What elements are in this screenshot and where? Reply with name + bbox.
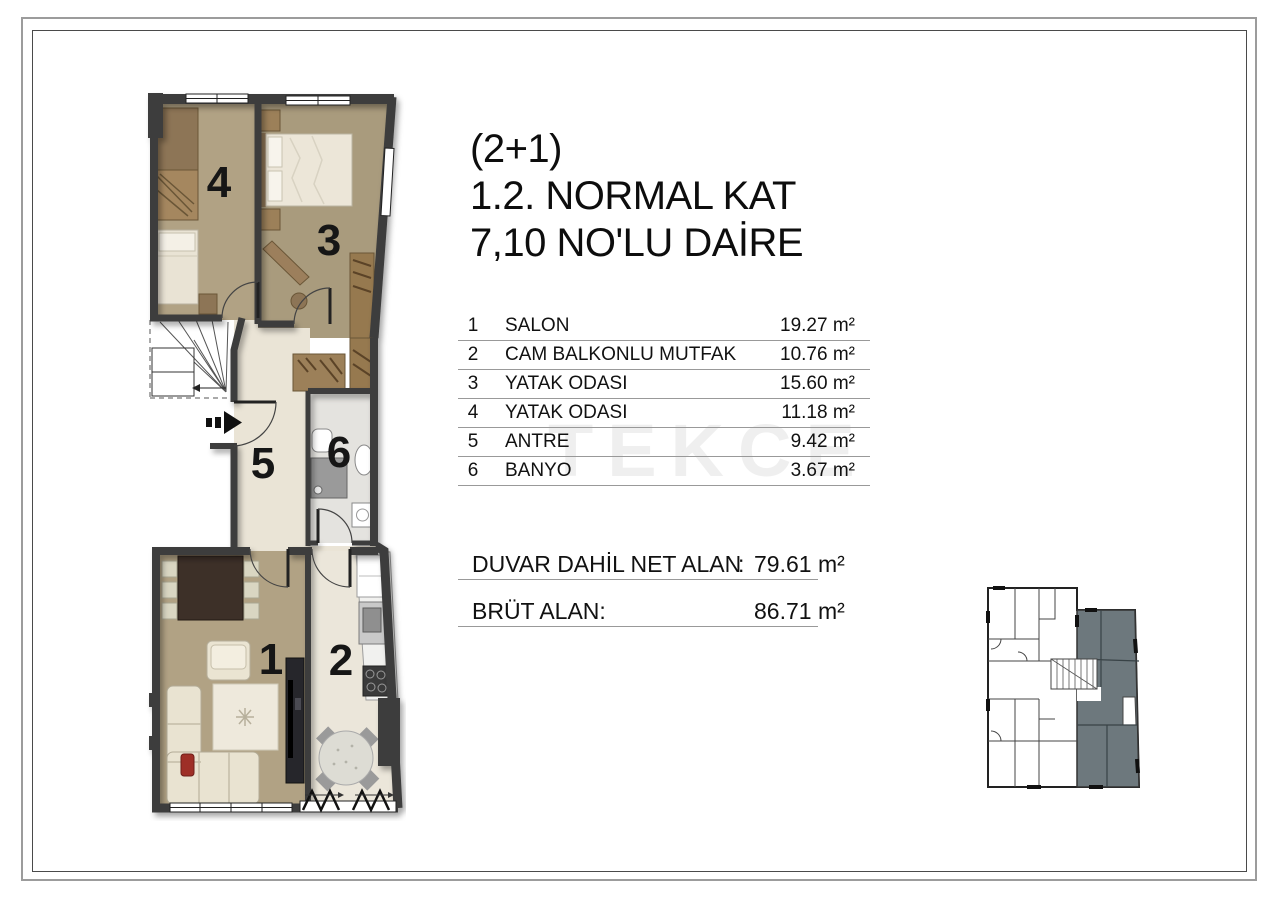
room-number-bath: 6 [327, 428, 351, 477]
keyplan-stairs [1051, 659, 1097, 689]
kitchen-table [315, 726, 379, 791]
room-number-bedroom3: 3 [317, 216, 341, 265]
table-row: 1 SALON 19.27 m² [458, 312, 870, 341]
unit-number-label: 7,10 NO'LU DAİRE [470, 220, 803, 267]
salon-rug [213, 684, 278, 750]
title-block: (2+1) 1.2. NORMAL KAT 7,10 NO'LU DAİRE [470, 126, 803, 267]
stairwell [150, 320, 234, 398]
room-name: SALON [488, 315, 763, 337]
gross-area-label: BRÜT ALAN: [472, 598, 606, 625]
table-row: 2 CAM BALKONLU MUTFAK 10.76 m² [458, 341, 870, 370]
room-name: YATAK ODASI [488, 373, 763, 395]
bedroom3-nightstand-bottom [260, 209, 280, 230]
salon-tv-unit [286, 658, 304, 783]
salon-armchair [207, 641, 250, 680]
room-area: 10.76 m² [763, 344, 870, 366]
room-area: 11.18 m² [763, 402, 870, 424]
apartment-type-label: (2+1) [470, 126, 803, 173]
room-area: 9.42 m² [763, 431, 870, 453]
room-no: 2 [458, 344, 488, 366]
bedroom4-bed [156, 230, 198, 304]
table-row: 4 YATAK ODASI 11.18 m² [458, 399, 870, 428]
bedroom3-nightstand-top [260, 110, 280, 131]
bedroom3-bed [260, 133, 352, 207]
bedroom4-nightstand [199, 294, 217, 314]
room-area: 3.67 m² [763, 460, 870, 482]
room-name: CAM BALKONLU MUTFAK [488, 344, 763, 366]
net-area-colon: : [738, 551, 744, 578]
net-area-value: 79.61 m² [754, 551, 845, 578]
table-row: 6 BANYO 3.67 m² [458, 457, 870, 486]
room-name: YATAK ODASI [488, 402, 763, 424]
room-no: 1 [458, 315, 488, 337]
room-area: 15.60 m² [763, 373, 870, 395]
room-no: 6 [458, 460, 488, 482]
gross-area-value: 86.71 m² [754, 598, 845, 625]
room-name: BANYO [488, 460, 763, 482]
gross-area-row: BRÜT ALAN: 86.71 m² [458, 598, 818, 627]
room-number-salon: 1 [259, 635, 283, 684]
table-row: 5 ANTRE 9.42 m² [458, 428, 870, 457]
keyplan-locator [983, 581, 1145, 795]
room-area: 19.27 m² [763, 315, 870, 337]
net-area-label: DUVAR DAHİL NET ALAN [472, 551, 741, 578]
room-number-bedroom4: 4 [207, 158, 232, 207]
net-area-row: DUVAR DAHİL NET ALAN : 79.61 m² [458, 551, 818, 580]
room-number-hall: 5 [251, 439, 275, 488]
room-no: 3 [458, 373, 488, 395]
rooms-table: 1 SALON 19.27 m² 2 CAM BALKONLU MUTFAK 1… [458, 312, 870, 486]
keyplan-highlighted-unit [1077, 610, 1139, 787]
area-totals: DUVAR DAHİL NET ALAN : 79.61 m² BRÜT ALA… [458, 551, 818, 645]
washing-machine [352, 503, 373, 527]
room-number-kitchen: 2 [329, 636, 353, 685]
salon-dining-table [162, 556, 259, 620]
room-no: 4 [458, 402, 488, 424]
table-row: 3 YATAK ODASI 15.60 m² [458, 370, 870, 399]
floor-label: 1.2. NORMAL KAT [470, 173, 803, 220]
floorplan-drawing: 4 3 5 6 1 2 [138, 83, 406, 821]
room-name: ANTRE [488, 431, 763, 453]
hall-shoe-cabinet [293, 354, 345, 391]
room-no: 5 [458, 431, 488, 453]
